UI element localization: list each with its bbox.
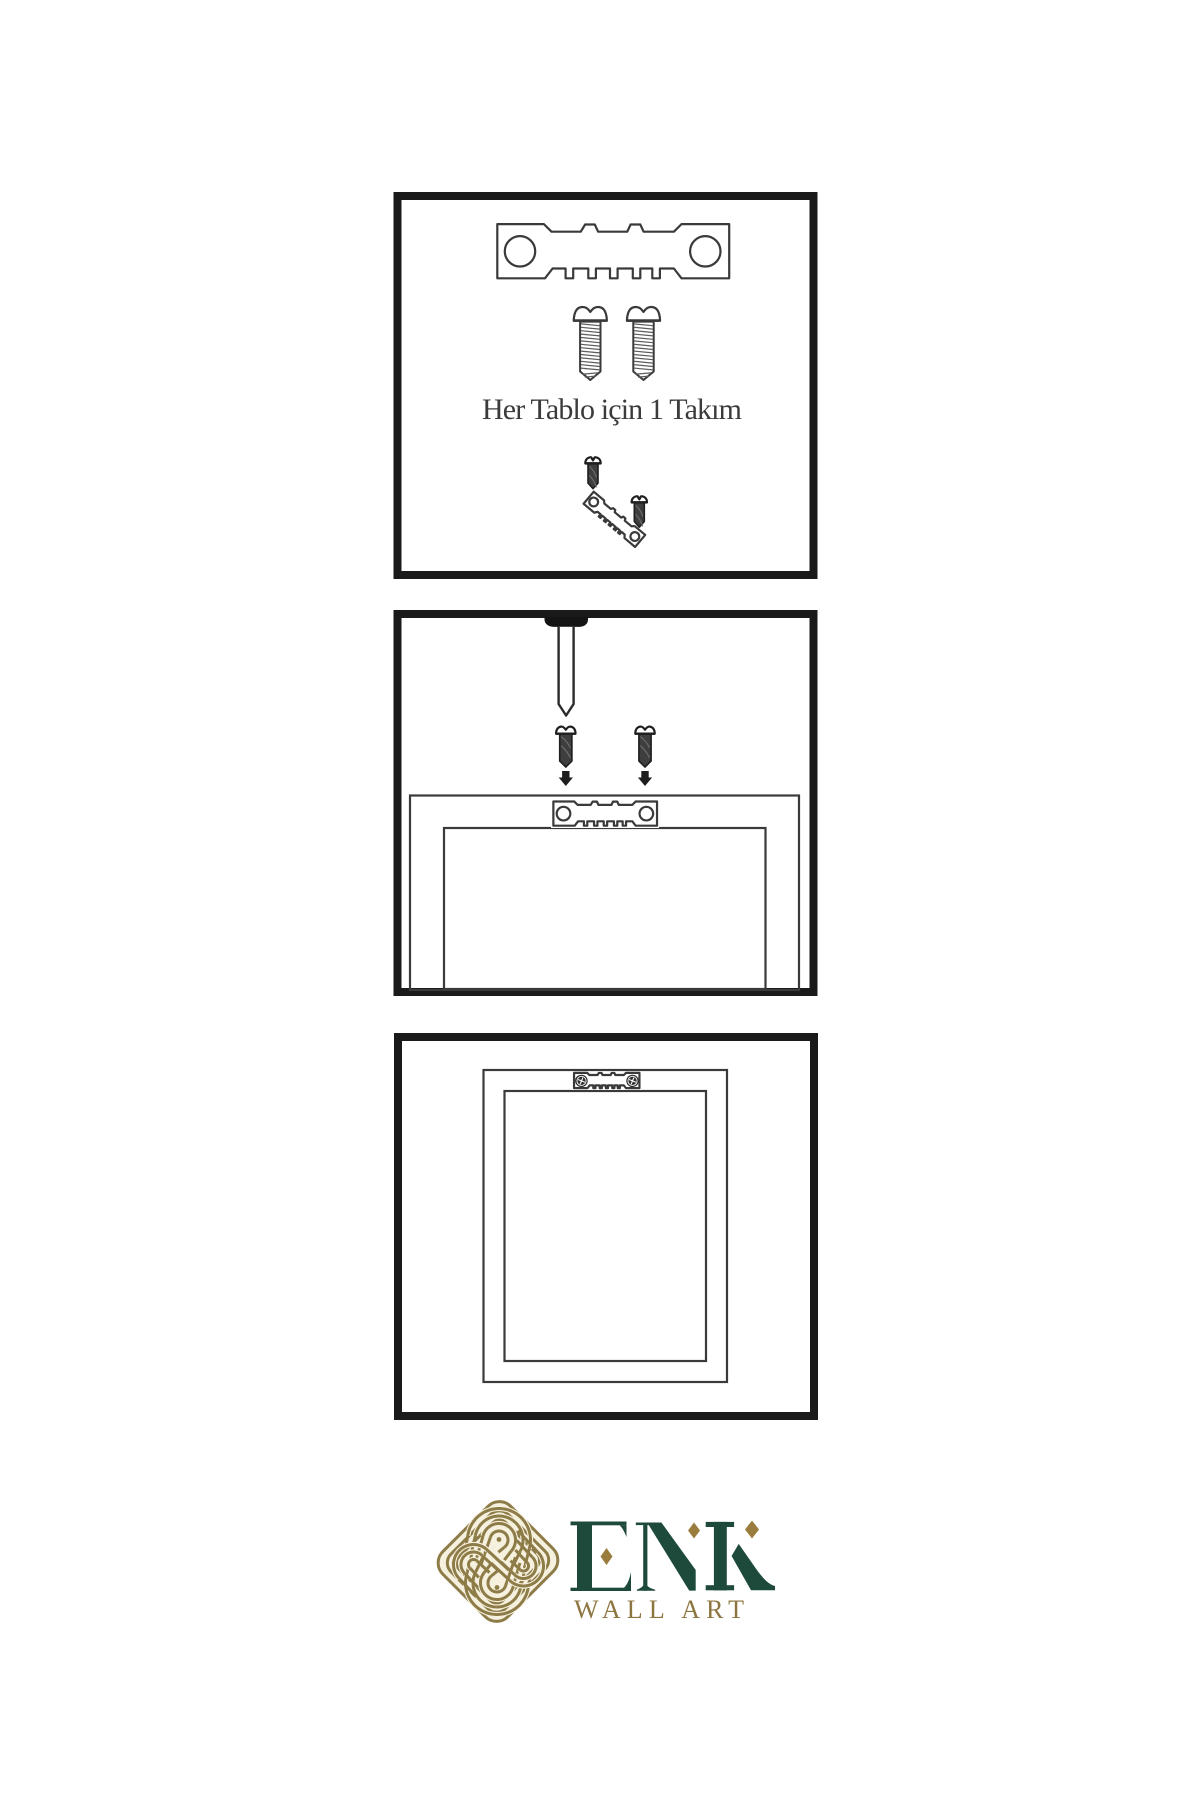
svg-text:Her Tablo için 1 Takım: Her Tablo için 1 Takım — [482, 393, 742, 426]
svg-text:WALL ART: WALL ART — [574, 1595, 744, 1624]
